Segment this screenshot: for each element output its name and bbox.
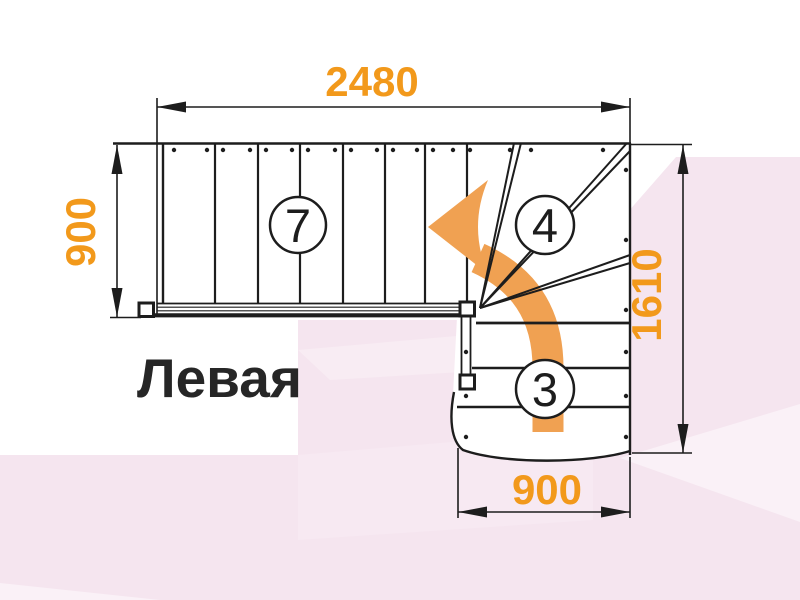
staircase-plan-drawing: 2480 900 1610 900 7 4 3 Левая bbox=[0, 0, 800, 600]
staircase-plan-page: 2480 900 1610 900 7 4 3 Левая bbox=[0, 0, 800, 600]
dimension-top-width: 2480 bbox=[157, 58, 630, 143]
newel-post-left bbox=[139, 303, 154, 317]
dim-arrow-up bbox=[112, 145, 123, 174]
dim-arrow-down bbox=[112, 288, 123, 317]
newel-post-corner bbox=[460, 302, 475, 316]
dim-arrow-left bbox=[157, 102, 186, 113]
dim-left-depth-label: 900 bbox=[57, 197, 104, 267]
dim-bottom-width-label: 900 bbox=[512, 466, 582, 513]
winder-step-count: 4 bbox=[532, 199, 558, 252]
dim-top-width-label: 2480 bbox=[325, 58, 418, 105]
plan-title: Левая bbox=[137, 347, 302, 409]
dim-arrow-right bbox=[601, 102, 630, 113]
lower-flight-step-count: 3 bbox=[532, 363, 558, 416]
newel-post-lower bbox=[460, 375, 475, 389]
upper-flight-step-count: 7 bbox=[285, 199, 311, 252]
dimension-left-depth: 900 bbox=[57, 145, 141, 318]
dim-right-height-label: 1610 bbox=[623, 248, 670, 341]
